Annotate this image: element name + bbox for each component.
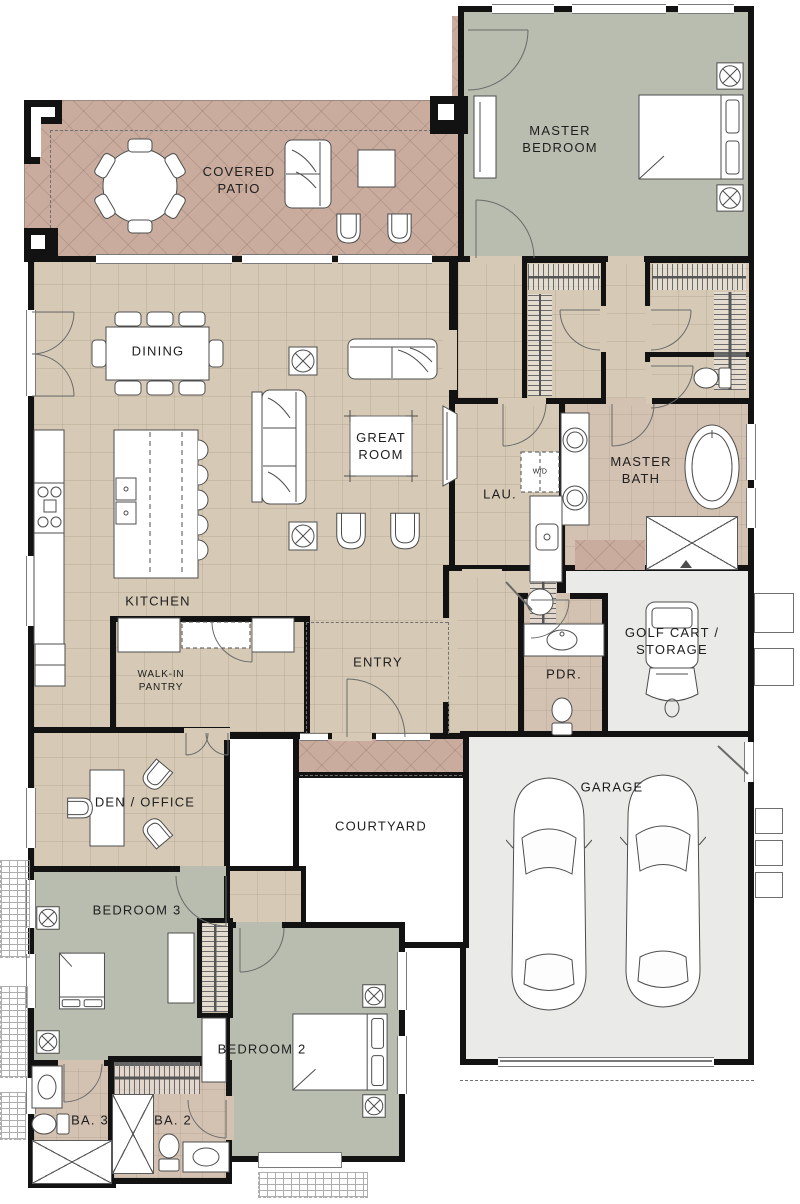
label-walk-in-pantry: WALK-IN PANTRY bbox=[138, 668, 185, 694]
kitchen-island bbox=[114, 430, 208, 578]
nightstand-icon bbox=[717, 63, 743, 89]
label-entry: ENTRY bbox=[353, 655, 403, 672]
armchair-icon bbox=[391, 513, 420, 549]
master-bed bbox=[639, 95, 743, 179]
car-icon bbox=[620, 775, 706, 1007]
patio-chair-icon bbox=[337, 214, 360, 243]
patio-side-table bbox=[358, 150, 395, 187]
nightstand-icon bbox=[363, 985, 385, 1007]
patio-dining-set bbox=[93, 139, 186, 233]
nightstand-icon bbox=[37, 1031, 59, 1053]
label-master-bedroom: MASTER BEDROOM bbox=[522, 123, 598, 157]
bath2-fixtures bbox=[159, 1134, 229, 1172]
side-table-icon bbox=[289, 347, 317, 375]
dresser bbox=[474, 96, 496, 178]
floor-plan: COVERED PATIO MASTER BEDROOM DINING GREA… bbox=[0, 0, 800, 1204]
label-kitchen: KITCHEN bbox=[125, 594, 190, 611]
loveseat bbox=[348, 339, 437, 379]
nightstand-icon bbox=[363, 1095, 385, 1117]
toilet-icon bbox=[552, 698, 572, 735]
side-table-icon bbox=[289, 522, 317, 550]
car-icon bbox=[506, 778, 592, 1010]
water-heater-icon bbox=[527, 589, 553, 615]
label-washer-dryer: W/D bbox=[533, 467, 548, 476]
nightstand-icon bbox=[37, 907, 59, 929]
toilet-icon bbox=[694, 368, 731, 388]
bed3 bbox=[60, 953, 105, 1009]
bed2 bbox=[293, 1014, 387, 1090]
label-laundry: LAU. bbox=[483, 487, 517, 504]
bathtub-icon bbox=[685, 425, 739, 509]
kitchen-counter bbox=[34, 430, 65, 686]
dresser bbox=[168, 933, 194, 1003]
great-room-sofa bbox=[252, 390, 306, 504]
master-vanity bbox=[561, 413, 589, 525]
label-covered-patio: COVERED PATIO bbox=[203, 164, 276, 198]
tv-console-icon bbox=[443, 406, 457, 486]
powder-vanity bbox=[524, 624, 604, 656]
label-master-bath: MASTER BATH bbox=[610, 454, 671, 488]
label-garage: GARAGE bbox=[581, 780, 644, 797]
furniture-layer bbox=[0, 0, 800, 1204]
bath3-fixtures bbox=[32, 1066, 69, 1134]
label-den-office: DEN / OFFICE bbox=[95, 795, 195, 812]
golf-cart-icon bbox=[646, 602, 698, 717]
nightstand-icon bbox=[717, 185, 743, 211]
laundry-counter bbox=[530, 496, 562, 582]
label-bedroom-2: BEDROOM 2 bbox=[218, 1042, 307, 1059]
label-powder: PDR. bbox=[546, 667, 582, 684]
label-great-room: GREAT ROOM bbox=[356, 430, 406, 464]
shower-drain bbox=[680, 560, 692, 568]
label-golf-cart: GOLF CART / STORAGE bbox=[625, 625, 719, 659]
label-bath-3: BA. 3 bbox=[71, 1113, 109, 1130]
armchair-icon bbox=[337, 513, 366, 549]
label-dining: DINING bbox=[132, 344, 185, 361]
label-bath-2: BA. 2 bbox=[154, 1113, 192, 1130]
pantry-counter bbox=[118, 618, 294, 652]
label-bedroom-3: BEDROOM 3 bbox=[93, 903, 182, 920]
patio-sofa bbox=[285, 140, 331, 208]
patio-chair-icon bbox=[388, 214, 411, 243]
label-courtyard: COURTYARD bbox=[335, 819, 427, 836]
